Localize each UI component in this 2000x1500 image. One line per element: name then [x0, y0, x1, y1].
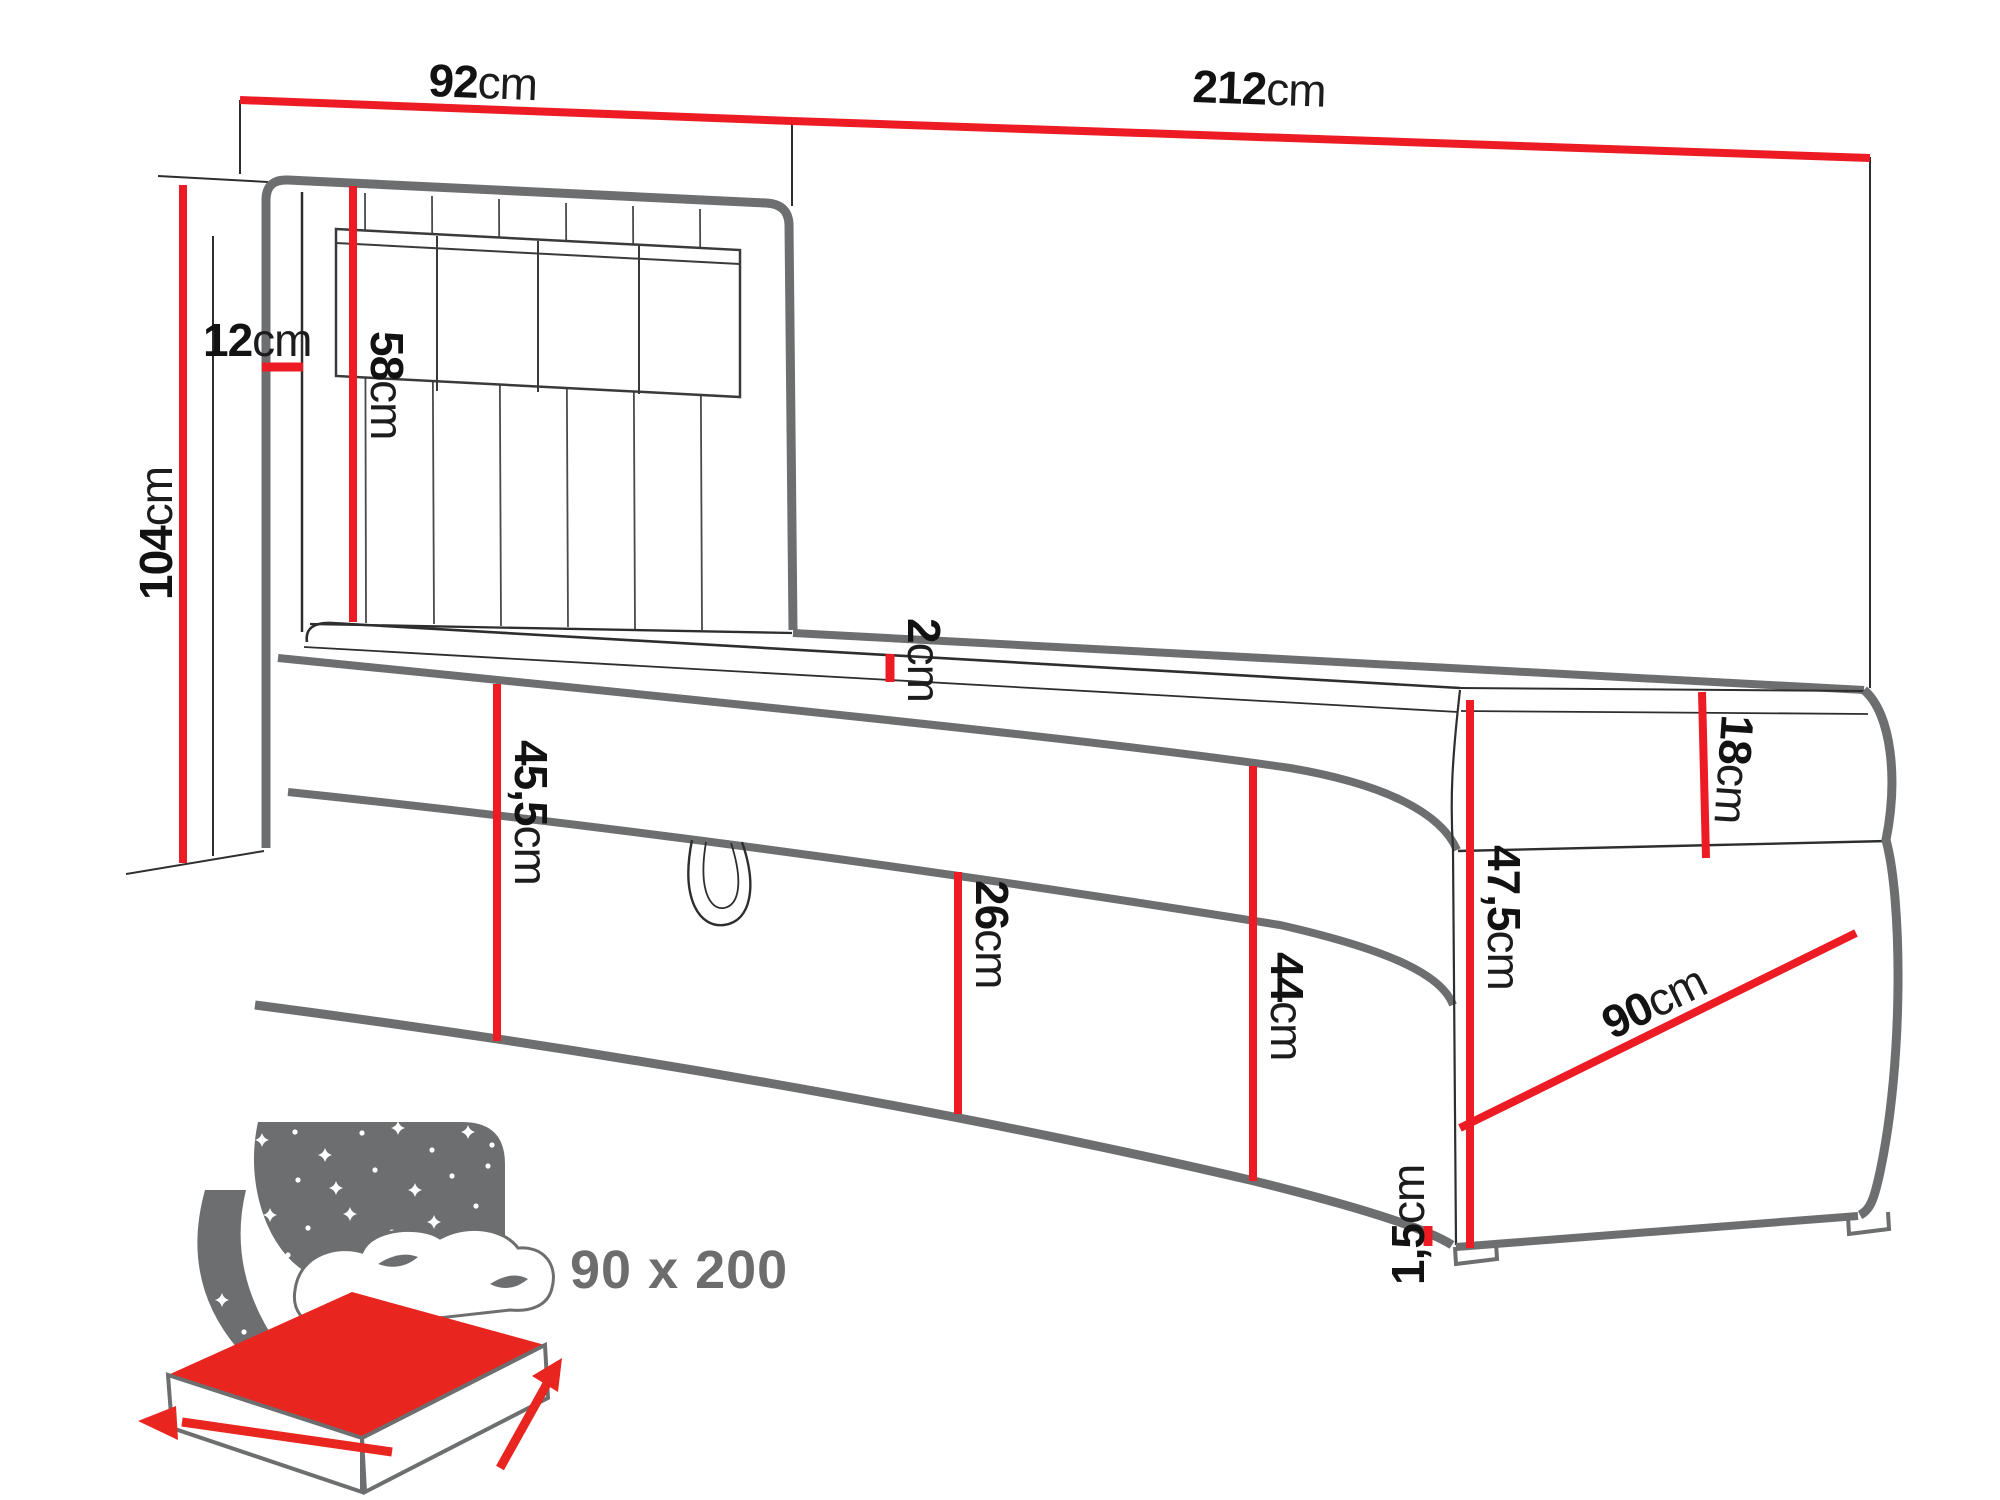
- star-icon: [252, 1247, 257, 1252]
- floor-line: [126, 851, 264, 874]
- bed-dimension-drawing: 92cm 212cm 104cm 12cm 58cm 2cm 45,5cm 26…: [0, 0, 2000, 1500]
- base-foot-bottom-edge: [1456, 1216, 1858, 1247]
- star-icon: [449, 1173, 454, 1178]
- dim-label-45-5cm: 45,5cm: [505, 740, 557, 885]
- dim-label-26cm: 26cm: [966, 880, 1018, 989]
- star-icon: [485, 1163, 490, 1168]
- bed-drawing: [255, 180, 1898, 1264]
- dim-label-1-5cm: 1,5cm: [1382, 1165, 1434, 1285]
- size-badge: 90 x 200: [570, 1240, 788, 1300]
- dim-label-47-5cm: 47,5cm: [1478, 845, 1530, 990]
- dim-label-212cm: 212cm: [1192, 60, 1327, 117]
- dim-label-18cm: 18cm: [1704, 713, 1763, 825]
- star-icon: [359, 1130, 364, 1135]
- star-icon: [257, 1277, 262, 1282]
- dim-label-12cm: 12cm: [203, 314, 312, 366]
- foot-right-profile: [1860, 690, 1898, 1215]
- dim-line-212: [792, 121, 1870, 158]
- extension-lines: [126, 100, 1870, 874]
- dim-label-58cm: 58cm: [361, 331, 413, 440]
- star-icon: [305, 1225, 310, 1230]
- dim-label-92cm: 92cm: [428, 54, 538, 110]
- topper-seam-foot: [1461, 711, 1868, 714]
- height-top-tick: [158, 176, 268, 182]
- star-icon: [473, 1203, 478, 1208]
- mattress: [304, 623, 1898, 1215]
- star-icon: [489, 1142, 494, 1147]
- storage-handle-inner: [703, 842, 738, 908]
- star-icon: [295, 1177, 300, 1182]
- star-icon: [285, 1252, 290, 1257]
- dim-label-104cm: 104cm: [130, 467, 182, 600]
- dim-label-44cm: 44cm: [1261, 952, 1313, 1061]
- star-icon: [241, 1329, 246, 1334]
- dim-line-18: [1702, 692, 1706, 858]
- bed-size-icon: 90 x 200: [138, 1121, 788, 1492]
- star-icon: [292, 1129, 297, 1134]
- base-top-edge: [278, 658, 1457, 850]
- star-icon: [429, 1147, 434, 1152]
- dim-label-2cm: 2cm: [898, 618, 950, 702]
- storage-handle: [688, 840, 750, 925]
- front-corner-edge: [1452, 690, 1460, 1245]
- star-icon: [372, 1167, 377, 1172]
- diagram-canvas: 92cm 212cm 104cm 12cm 58cm 2cm 45,5cm 26…: [0, 0, 2000, 1500]
